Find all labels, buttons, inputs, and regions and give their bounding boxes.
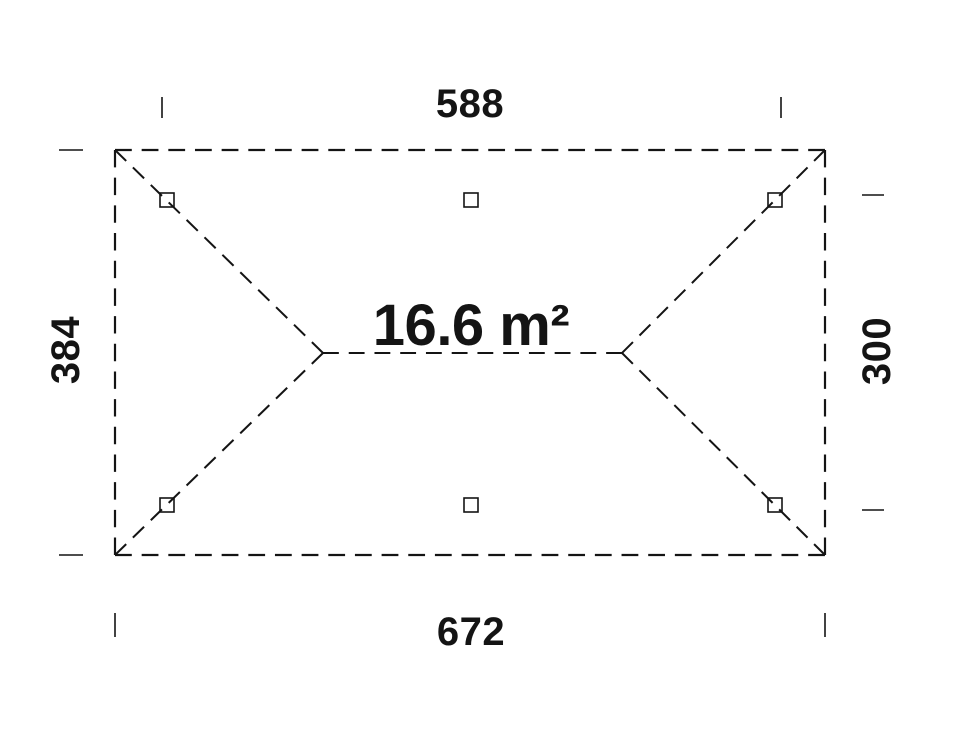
roof-hip-line [622, 150, 825, 353]
post-marker [464, 498, 478, 512]
area-label: 16.6 m² [373, 297, 569, 355]
post-marker [464, 193, 478, 207]
dimension-label-left: 384 [46, 316, 86, 384]
roof-hip-line [115, 353, 323, 555]
floor-plan: 16.6 m² 588 672 384 300 [0, 0, 963, 730]
roof-hip-line [622, 353, 825, 555]
dimension-label-right: 300 [857, 317, 897, 385]
dimension-label-bottom: 672 [437, 612, 505, 652]
dimension-label-top: 588 [436, 84, 504, 124]
roof-hip-line [115, 150, 323, 353]
